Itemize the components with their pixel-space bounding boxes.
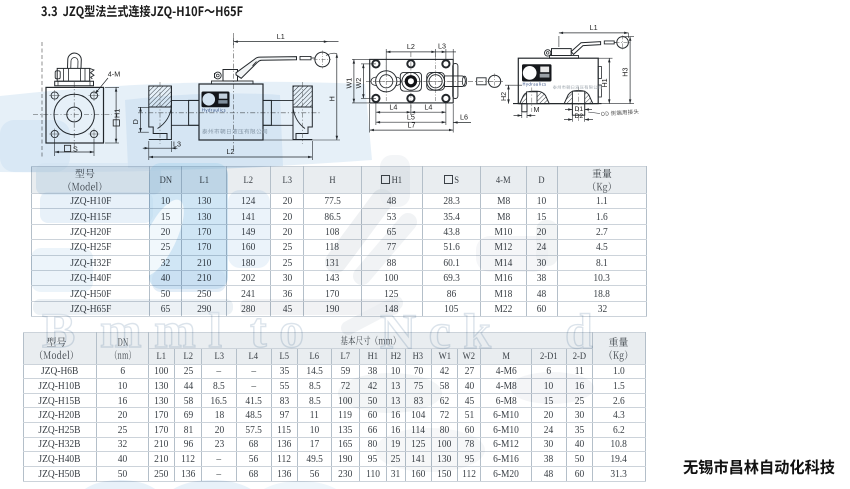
- svg-text:H: H: [327, 96, 336, 101]
- svg-text:4-M: 4-M: [108, 70, 120, 79]
- svg-text:D: D: [131, 119, 140, 124]
- svg-text:L2: L2: [227, 147, 235, 156]
- svg-text:H1: H1: [113, 109, 122, 118]
- svg-text:L1: L1: [590, 23, 598, 32]
- svg-text:L6: L6: [460, 113, 468, 122]
- svg-text:H2: H2: [499, 92, 508, 101]
- svg-text:D1: D1: [574, 106, 583, 113]
- svg-text:L7: L7: [407, 120, 415, 129]
- svg-text:S: S: [73, 144, 78, 153]
- svg-text:L3: L3: [173, 140, 181, 149]
- svg-text:L1: L1: [277, 32, 285, 41]
- svg-text:L4: L4: [424, 102, 432, 111]
- svg-text:H3: H3: [621, 67, 630, 76]
- svg-text:L3: L3: [438, 42, 446, 51]
- svg-text:L2: L2: [407, 42, 415, 51]
- svg-text:H1: H1: [600, 78, 609, 87]
- svg-text:L4: L4: [389, 102, 397, 111]
- svg-text:W1: W1: [344, 78, 353, 89]
- svg-text:D2: D2: [574, 113, 583, 120]
- svg-text:W2: W2: [354, 78, 363, 89]
- svg-text:M: M: [534, 105, 540, 114]
